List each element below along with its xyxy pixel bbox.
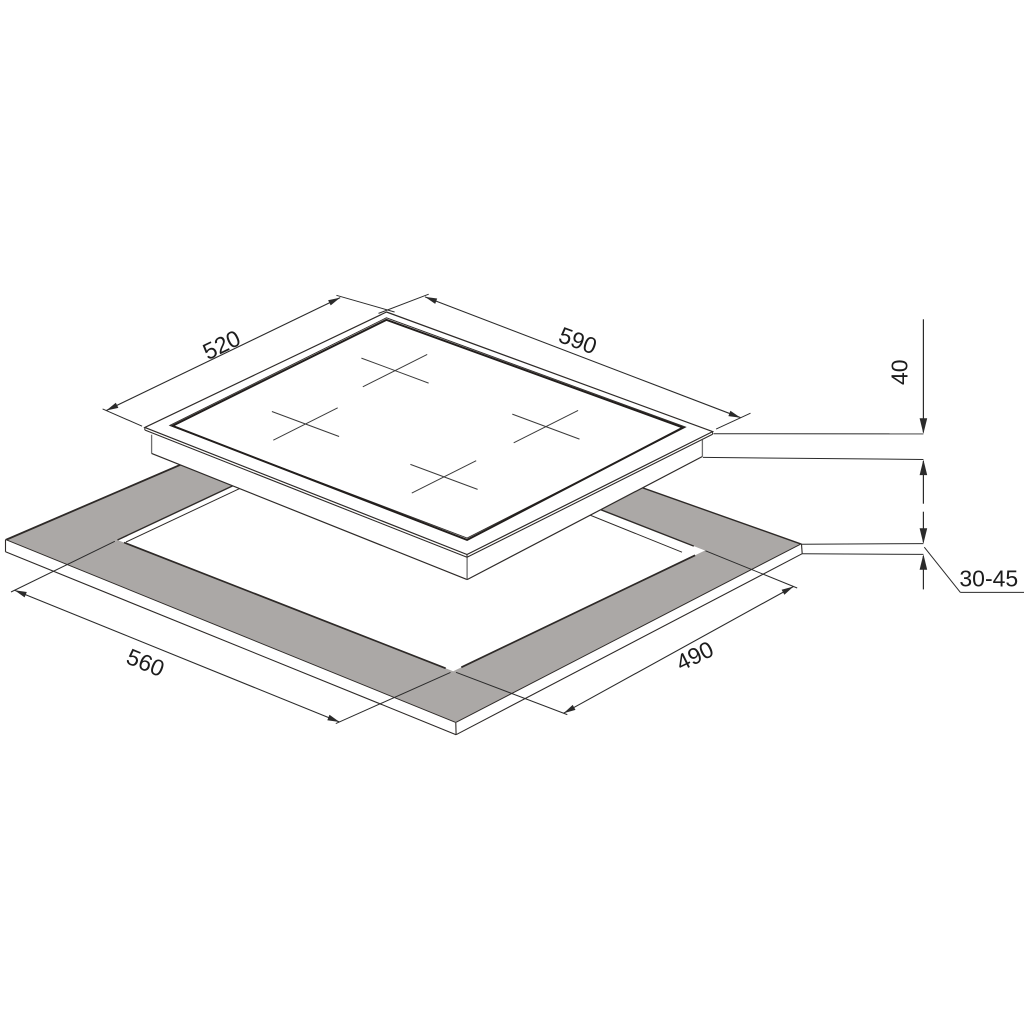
svg-text:40: 40 [887,359,913,385]
svg-text:30-45: 30-45 [959,566,1018,592]
